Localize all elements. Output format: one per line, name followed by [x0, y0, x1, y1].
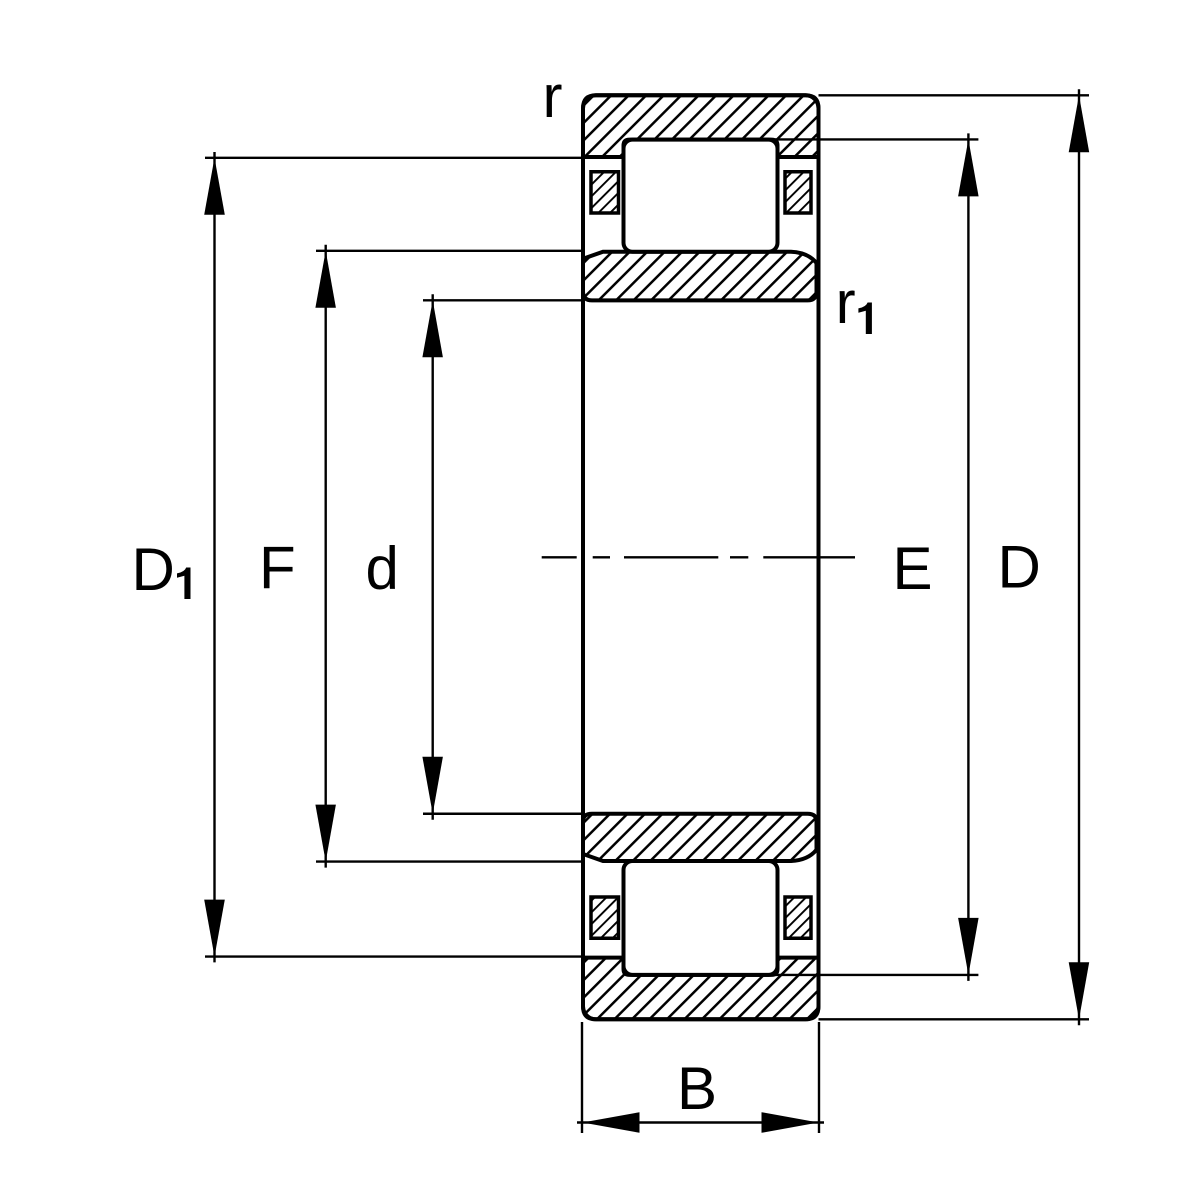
svg-text:r: r [836, 269, 856, 336]
svg-text:d: d [366, 535, 399, 602]
svg-text:D: D [132, 536, 175, 603]
svg-text:E: E [893, 535, 933, 602]
svg-text:D: D [998, 534, 1041, 601]
svg-text:B: B [677, 1055, 717, 1122]
svg-text:r: r [543, 63, 563, 130]
svg-text:F: F [259, 535, 296, 602]
